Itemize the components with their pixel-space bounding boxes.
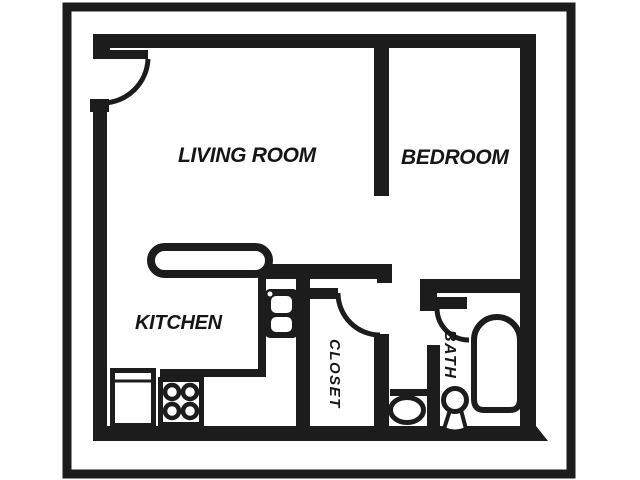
wall-closet-north — [258, 264, 392, 279]
toilet — [391, 398, 424, 423]
kitchen-sink-basin-top — [271, 296, 292, 313]
stove-burner-icon — [165, 404, 179, 418]
wall-toilet-nook — [427, 345, 440, 427]
wall-corner-nub — [536, 426, 548, 441]
bedroom-label: BEDROOM — [401, 146, 509, 169]
wall-left — [93, 99, 107, 440]
toilet-tank — [390, 389, 428, 396]
counter-edge-horizontal — [160, 369, 266, 377]
floor-plan-scan: LIVING ROOM BEDROOM KITCHEN CLOSET BATH — [0, 0, 640, 480]
kitchen-sink-basin-bottom — [271, 317, 292, 332]
bath-label: BATH — [441, 330, 458, 379]
closet-label: CLOSET — [326, 339, 343, 409]
closet-door-swing-arc — [338, 293, 380, 335]
pedestal-sink — [444, 389, 467, 412]
bath-door-leaf — [423, 297, 467, 309]
wall-kitchen-east — [296, 264, 310, 426]
wall-bottom — [93, 426, 536, 441]
closet-door-leaf — [310, 288, 338, 299]
kitchen-sink-faucet-dot — [268, 292, 273, 297]
stove-burner-icon — [165, 385, 179, 399]
counter-edge-vertical — [258, 274, 266, 377]
kitchen-label: KITCHEN — [135, 312, 223, 334]
stove-burner-icon — [183, 404, 197, 418]
wall-closet-north-cap — [377, 264, 392, 283]
wall-bedroom-west — [374, 48, 389, 196]
refrigerator — [113, 371, 154, 426]
stove-burner-icon — [183, 385, 197, 399]
living-room-label: LIVING ROOM — [178, 144, 317, 167]
wall-closet-east — [374, 334, 389, 427]
wall-top — [93, 34, 534, 48]
bathtub — [474, 317, 520, 410]
counter-peninsula — [151, 247, 269, 274]
entry-door-leaf — [106, 50, 148, 59]
floor-plan-drawing: LIVING ROOM BEDROOM KITCHEN CLOSET BATH — [0, 0, 640, 480]
entry-door-swing-arc — [103, 59, 148, 103]
